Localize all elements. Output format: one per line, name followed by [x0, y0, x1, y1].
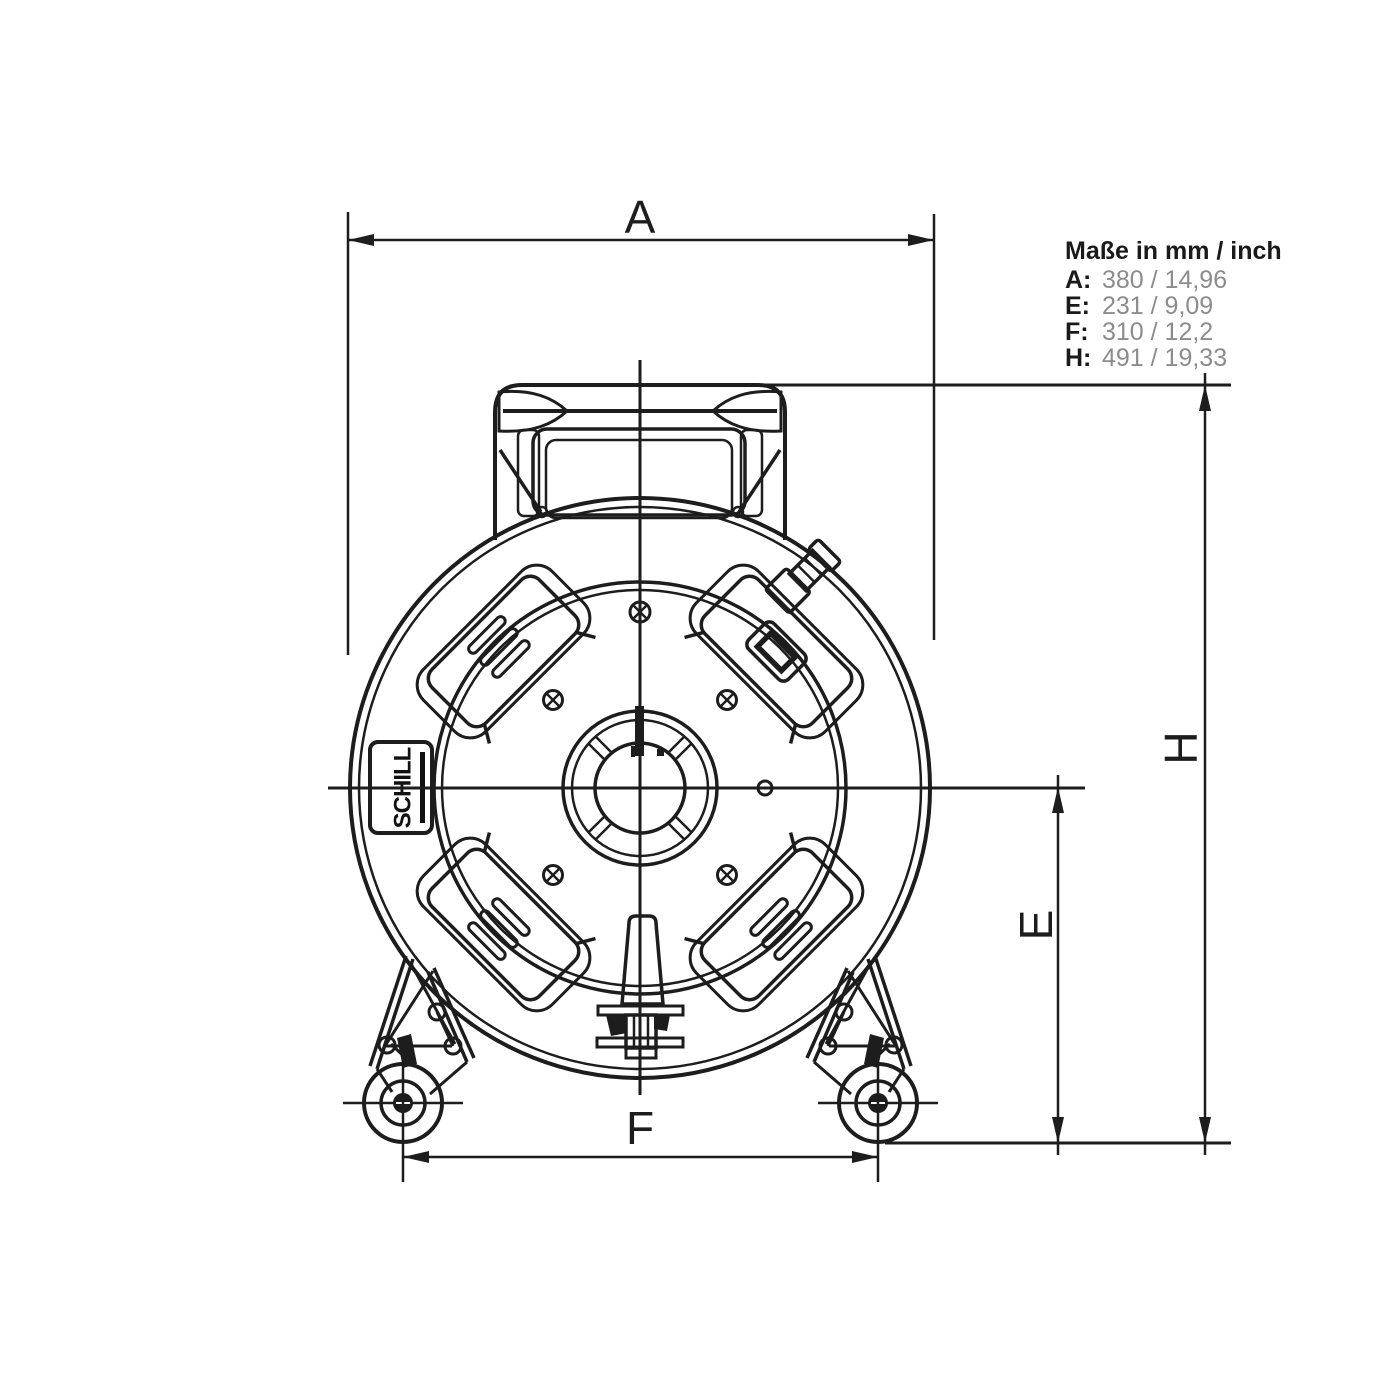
legend-value: 380 / 14,96: [1102, 267, 1227, 293]
legend-label: A:: [1065, 267, 1102, 293]
legend-value: 310 / 12,2: [1102, 319, 1213, 345]
legend: Maße in mm / inch A: 380 / 14,96 E: 231 …: [1065, 238, 1282, 371]
hub-marking-2: [657, 749, 664, 756]
pod-top-right: [673, 510, 918, 755]
screw: [544, 691, 563, 710]
dim-label-f: F: [626, 1102, 654, 1154]
hub-marking-1: [631, 746, 635, 757]
dim-label-a: A: [625, 191, 656, 243]
clamp-pad-left: [606, 1015, 627, 1036]
screw: [718, 866, 737, 885]
pod-bottom-left: [408, 821, 607, 1020]
drawing-canvas: SCHILL: [0, 0, 1400, 1400]
dim-label-h: H: [1155, 731, 1207, 764]
legend-row-e: E: 231 / 9,09: [1065, 293, 1282, 319]
technical-drawing: SCHILL: [0, 0, 1400, 1400]
connector-recess: [744, 619, 809, 684]
screw: [718, 691, 737, 710]
screw: [544, 866, 563, 885]
legend-row-f: F: 310 / 12,2: [1065, 319, 1282, 345]
legend-row-a: A: 380 / 14,96: [1065, 267, 1282, 293]
legend-value: 231 / 9,09: [1102, 293, 1213, 319]
dimension-e: E: [1010, 775, 1064, 1155]
legend-label: F:: [1065, 319, 1102, 345]
legend-value: 491 / 19,33: [1102, 345, 1227, 371]
pod-top-left: [408, 556, 607, 755]
winding-grip: [622, 916, 663, 1004]
handle-left-brace: [500, 450, 541, 512]
legend-title: Maße in mm / inch: [1065, 238, 1282, 264]
legend-label: E:: [1065, 293, 1102, 319]
legend-label: H:: [1065, 345, 1102, 371]
dim-label-e: E: [1010, 910, 1062, 941]
legend-row-h: H: 491 / 19,33: [1065, 345, 1282, 371]
pod-bottom-right: [673, 821, 872, 1020]
